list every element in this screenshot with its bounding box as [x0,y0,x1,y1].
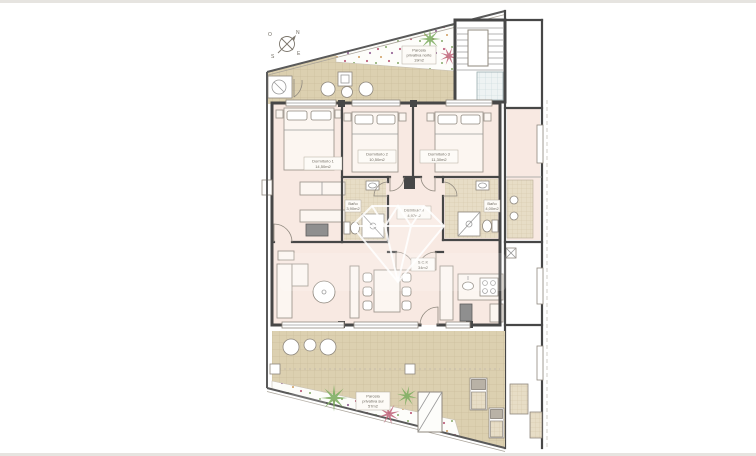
bedroom-1-area: 14,50m2 [315,164,331,169]
bedroom-3-area: 11,30m2 [431,157,447,162]
bath-2-area: 4,00m2 [485,206,499,211]
planter-icon [338,72,352,86]
compass-s: S [271,54,275,60]
watermark-text-band [268,394,326,416]
parcel-south-label: Parcela privativa sur 57m2 [356,392,390,410]
compass-n: N [296,30,300,36]
shaft-icon [506,248,516,258]
parcel-north-label: Parcela privativa norte 19m2 [402,46,436,64]
floor-plan-svg: Parcela privativa norte 19m2 [0,0,756,456]
label-bath-1: Baño 3,90m2 [345,200,361,212]
toilet-icon [483,220,492,232]
floor-plan-image: Parcela privativa norte 19m2 [0,0,756,456]
window-icon [286,100,336,106]
bedroom-3-name: Dormitorio 3 [428,152,451,157]
bedroom-2-name: Dormitorio 2 [366,152,389,157]
sink-icon [476,181,489,190]
compass-o: O [268,32,272,38]
label-bedroom-2: Dormitorio 2 10,50m2 [358,150,396,163]
label-bedroom-1: Dormitorio 1 14,50m2 [304,157,342,170]
parcel-south-area: 57m2 [368,404,379,409]
window-icon [282,322,344,328]
compass-e: E [297,51,301,57]
appliance-icon [460,304,472,321]
compass-letters: N E S O [268,30,301,60]
compass-rose [278,35,296,53]
stairwell [455,20,505,102]
label-bedroom-3: Dormitorio 3 11,30m2 [420,150,458,163]
watermark-text-band [280,253,506,291]
bedroom-2-area: 10,50m2 [369,157,385,162]
gate-icon [418,392,442,432]
stair-landing-tiles [477,72,503,100]
window-icon [446,100,492,106]
parcel-north-area: 19m2 [414,58,425,63]
tv-icon [306,224,328,236]
window-icon [446,322,470,328]
label-bath-2: Baño 4,00m2 [484,200,500,212]
bedroom-1-name: Dormitorio 1 [312,159,335,164]
dresser-icon [300,182,345,195]
bath-1-area: 3,90m2 [346,206,360,211]
window-icon [352,100,400,106]
window-icon [354,322,418,328]
sink-icon [366,181,379,190]
image-top-edge [0,0,756,3]
neighbour-unit-strip [505,20,547,450]
